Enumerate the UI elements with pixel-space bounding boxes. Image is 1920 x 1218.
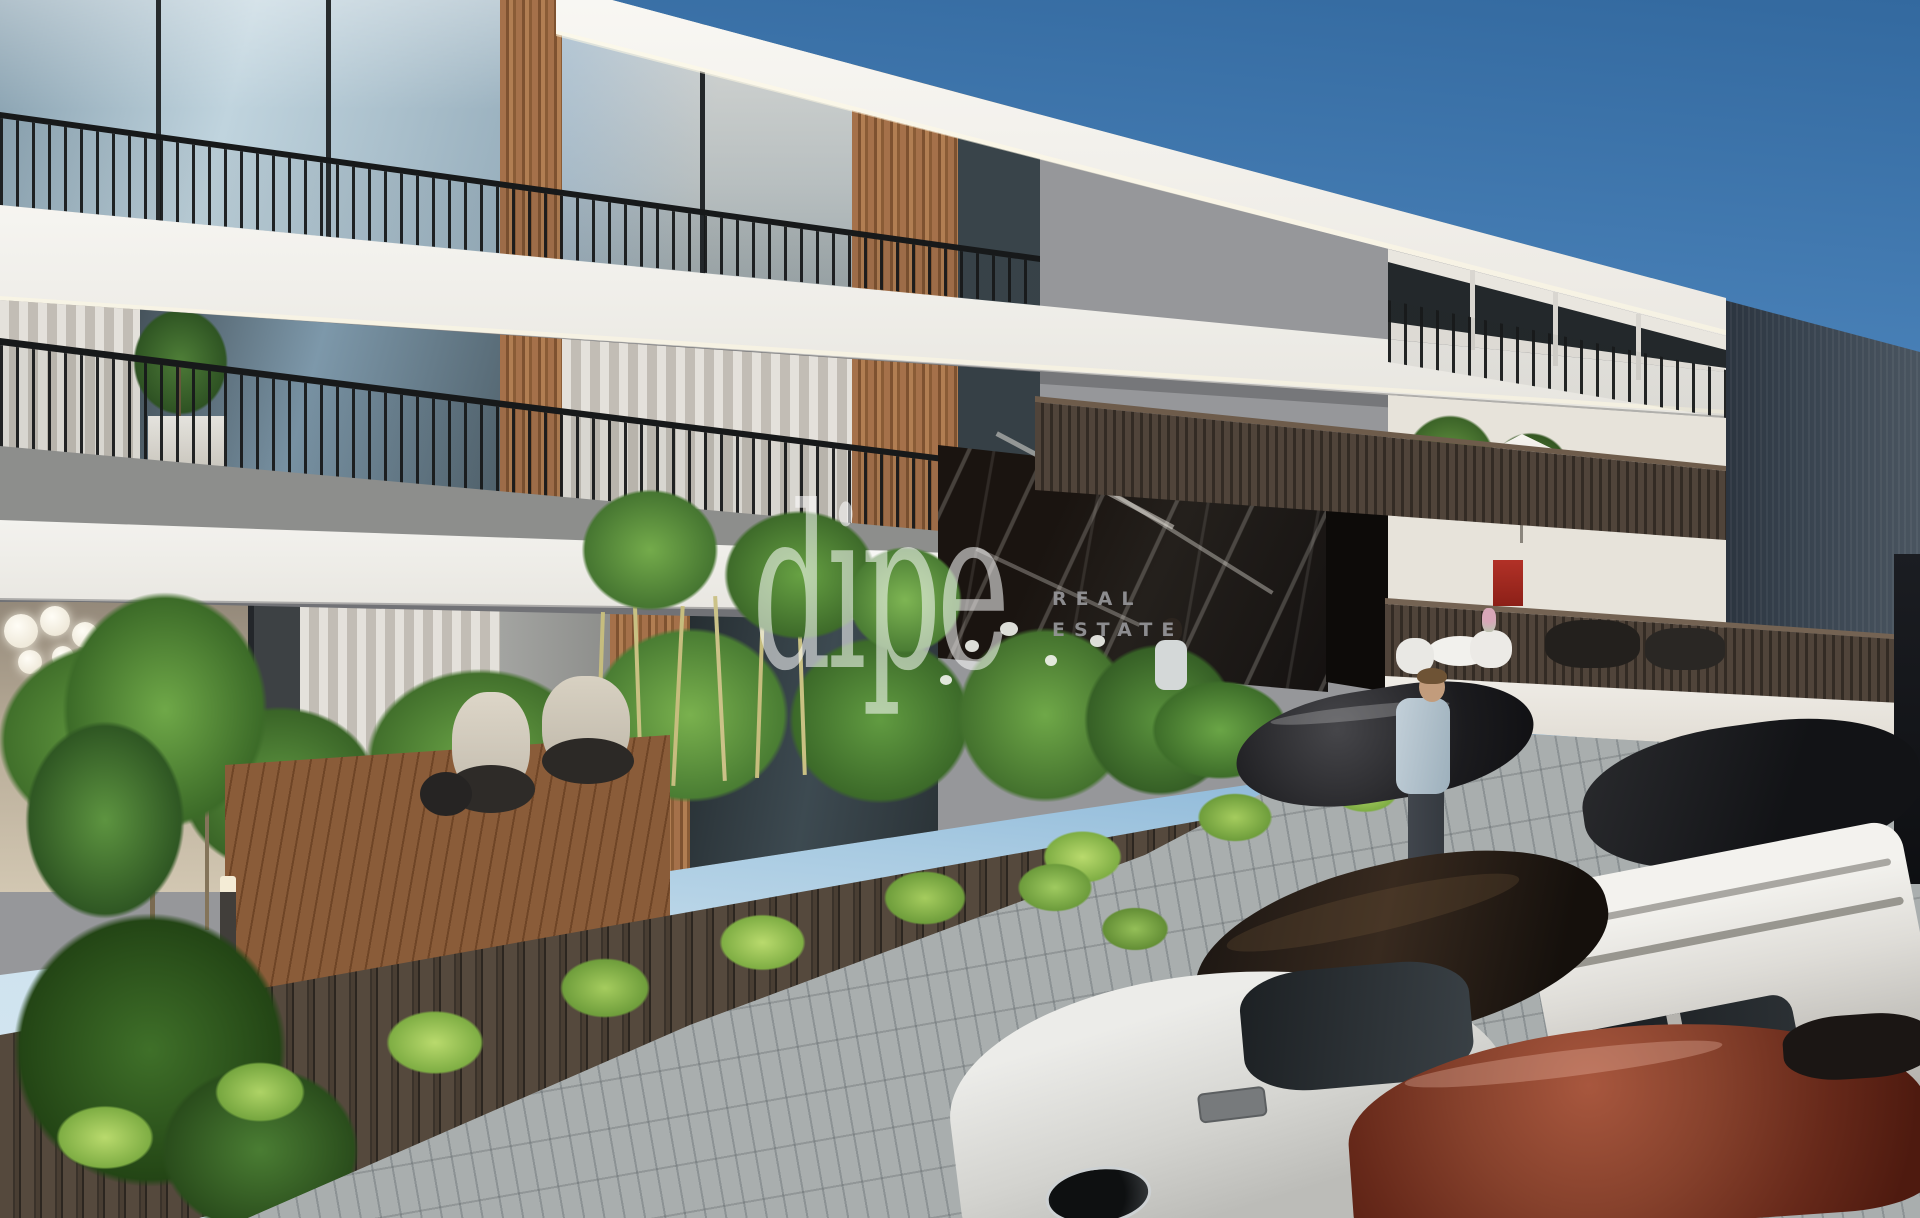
headlight bbox=[1042, 1160, 1154, 1218]
pavement-weed bbox=[1090, 900, 1180, 958]
white-flowers bbox=[1045, 655, 1057, 666]
wicker-chair-base bbox=[542, 738, 634, 784]
man-torso-blue-shirt bbox=[1396, 698, 1450, 794]
watermark-logo: dipe bbox=[752, 478, 1006, 703]
lounge-sofa-dark bbox=[1545, 620, 1640, 668]
green-plant bbox=[200, 1052, 320, 1132]
watermark-tagline-line1: REAL bbox=[1052, 584, 1183, 615]
green-plant bbox=[370, 1000, 500, 1085]
watermark-tagline-line2: ESTATE bbox=[1052, 615, 1183, 646]
red-artwork bbox=[1493, 560, 1523, 606]
terrace-chair bbox=[1470, 630, 1512, 668]
green-plant bbox=[40, 1095, 170, 1180]
flower-vase bbox=[1482, 608, 1496, 632]
lounge-sofa-dark bbox=[1645, 628, 1725, 670]
green-plant bbox=[870, 862, 980, 934]
green-plant bbox=[545, 948, 665, 1028]
architectural-render-scene: dipe REAL ESTATE bbox=[0, 0, 1920, 1218]
man-hair bbox=[1417, 668, 1447, 684]
hood-vent bbox=[1197, 1086, 1268, 1124]
green-plant bbox=[705, 905, 820, 980]
entrance-opening bbox=[1326, 486, 1388, 696]
ceiling-reflection bbox=[0, 0, 500, 110]
side-table bbox=[420, 772, 472, 816]
watermark-tagline: REAL ESTATE bbox=[1052, 584, 1183, 646]
